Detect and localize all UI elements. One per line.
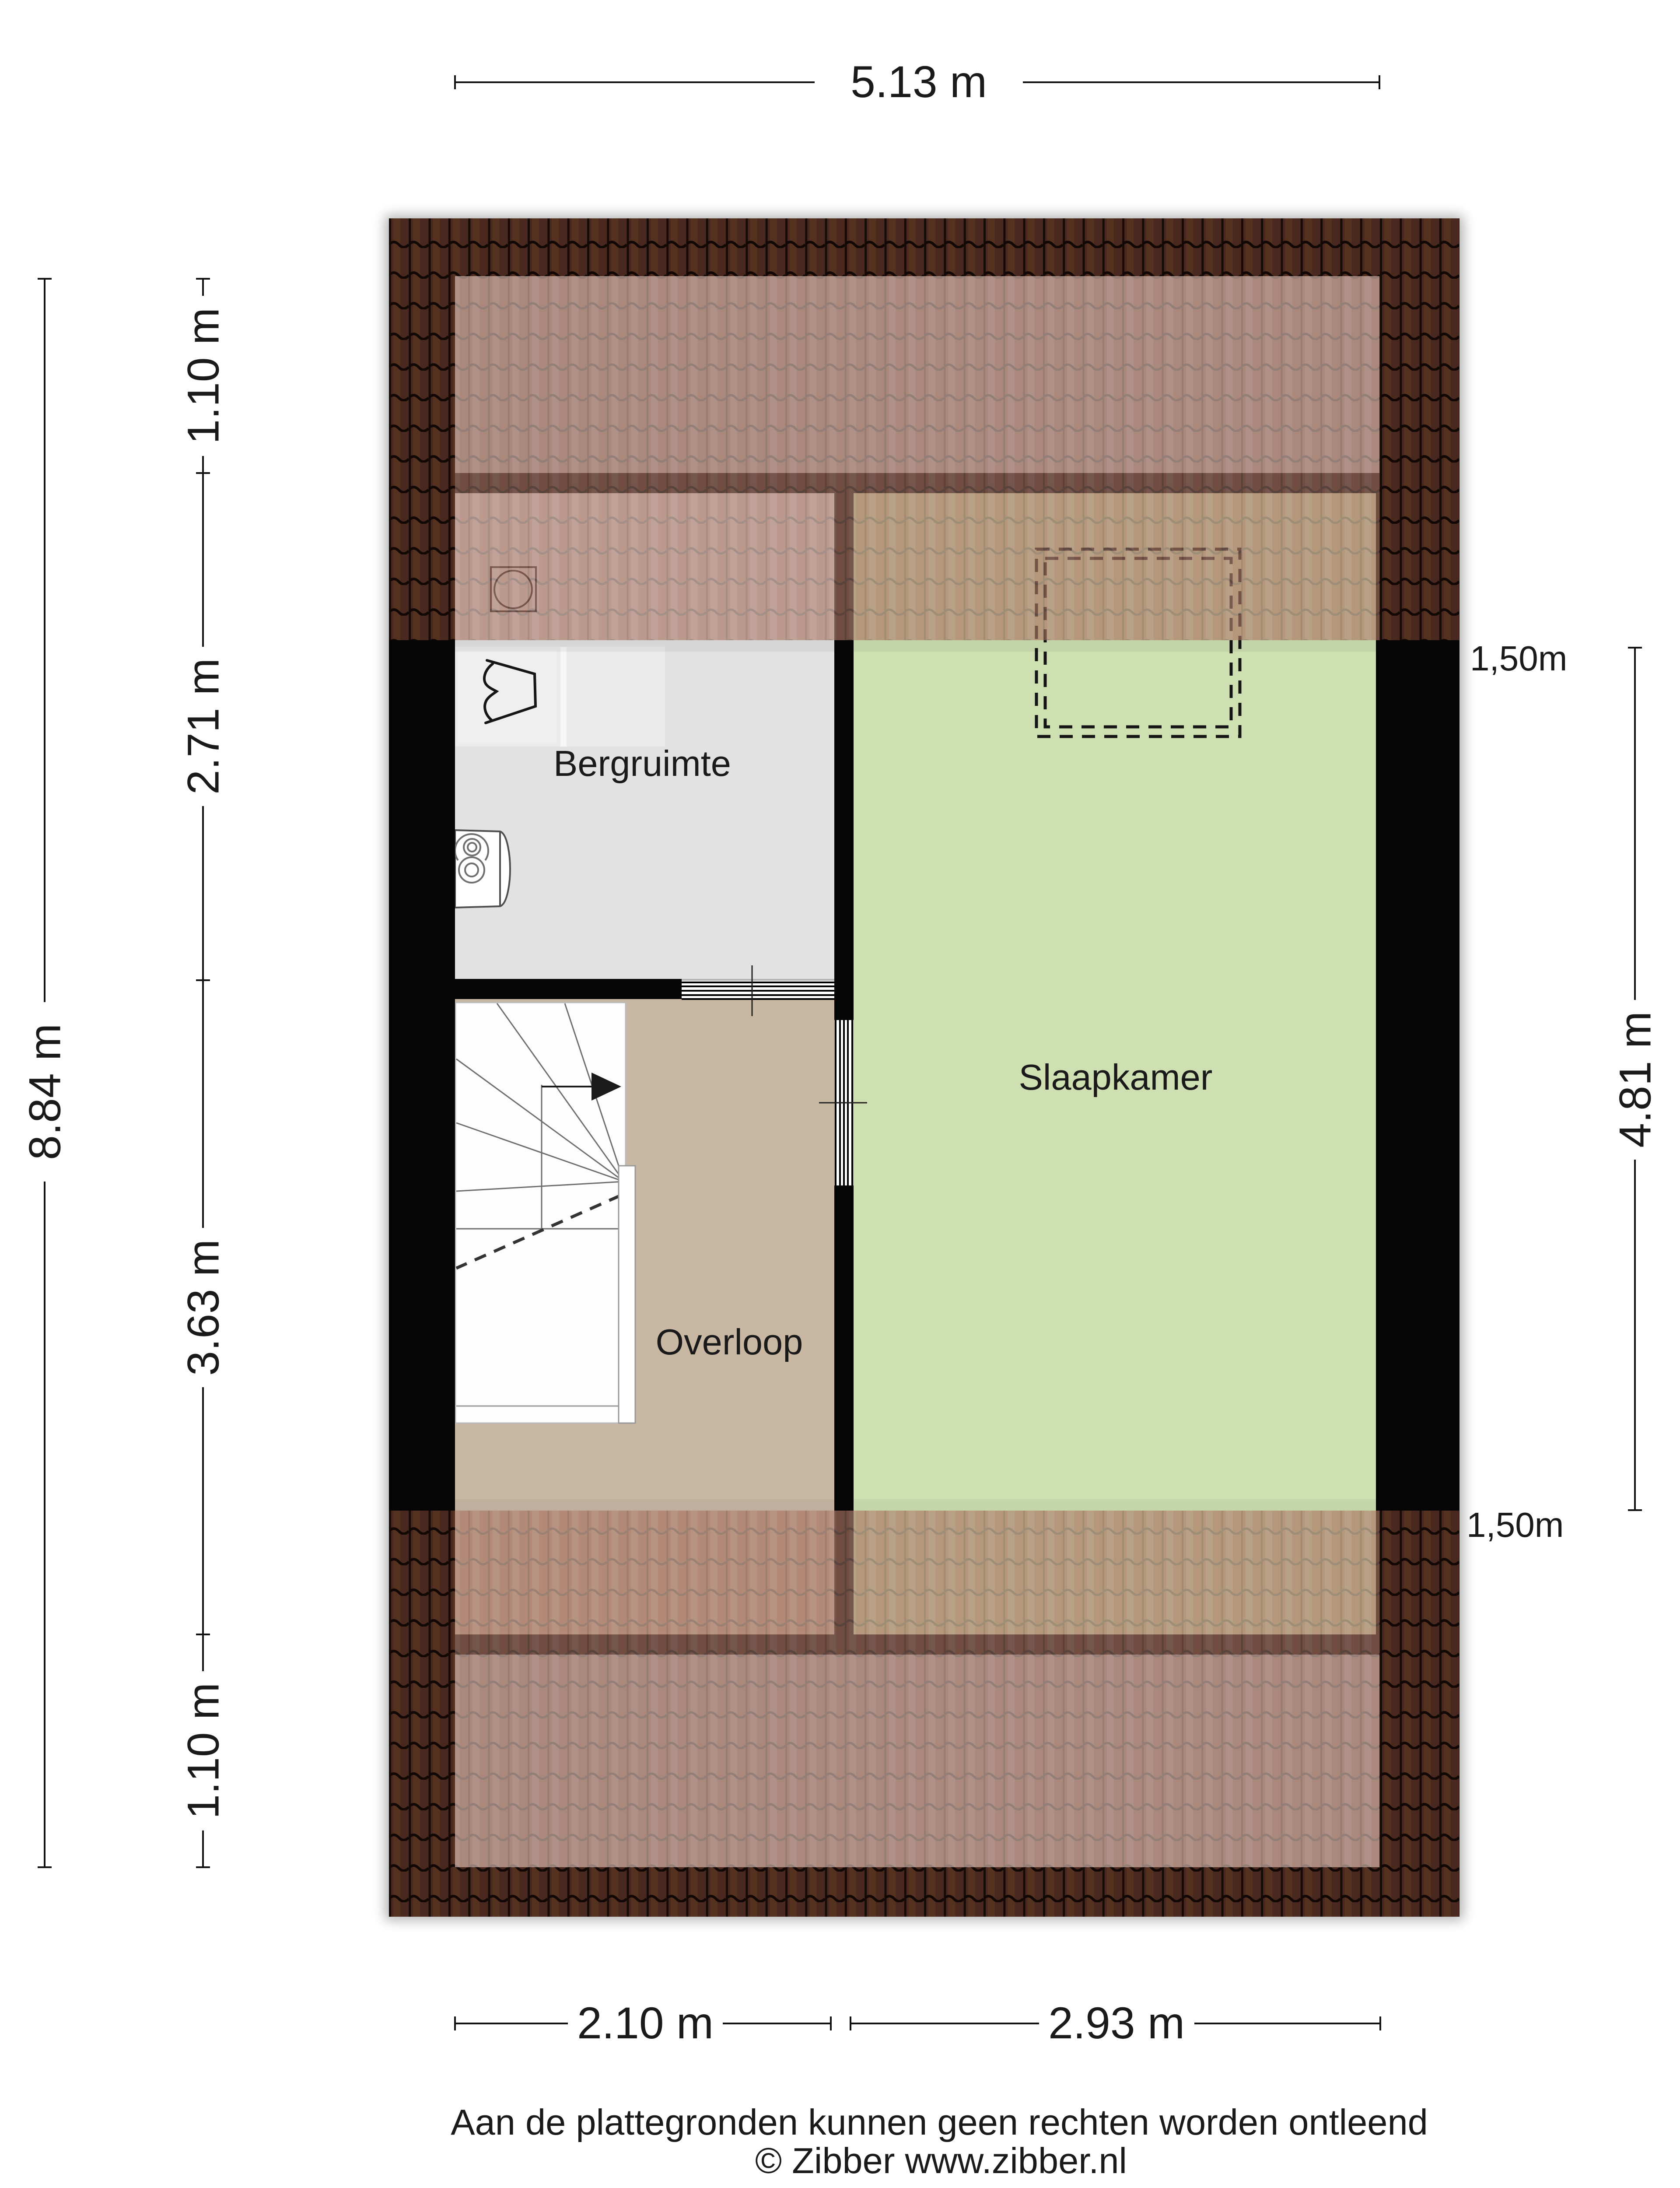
svg-text:Overloop: Overloop <box>656 1322 803 1362</box>
svg-text:1.10 m: 1.10 m <box>178 1683 228 1819</box>
svg-text:Slaapkamer: Slaapkamer <box>1019 1057 1213 1098</box>
svg-text:3.63 m: 3.63 m <box>178 1239 228 1376</box>
svg-text:© Zibber www.zibber.nl: © Zibber www.zibber.nl <box>755 2140 1127 2181</box>
svg-text:1,50m: 1,50m <box>1470 639 1567 678</box>
svg-text:1.10 m: 1.10 m <box>178 308 228 444</box>
svg-text:4.81 m: 4.81 m <box>1610 1011 1660 1148</box>
svg-text:1,50m: 1,50m <box>1466 1505 1564 1544</box>
svg-text:5.13 m: 5.13 m <box>850 57 987 107</box>
svg-text:8.84 m: 8.84 m <box>20 1024 70 1160</box>
svg-text:2.10 m: 2.10 m <box>577 1998 714 2048</box>
svg-text:Bergruimte: Bergruimte <box>553 743 731 784</box>
svg-text:2.93 m: 2.93 m <box>1048 1998 1185 2048</box>
svg-text:2.71 m: 2.71 m <box>178 658 228 795</box>
svg-text:Aan de plattegronden kunnen ge: Aan de plattegronden kunnen geen rechten… <box>451 2102 1428 2142</box>
